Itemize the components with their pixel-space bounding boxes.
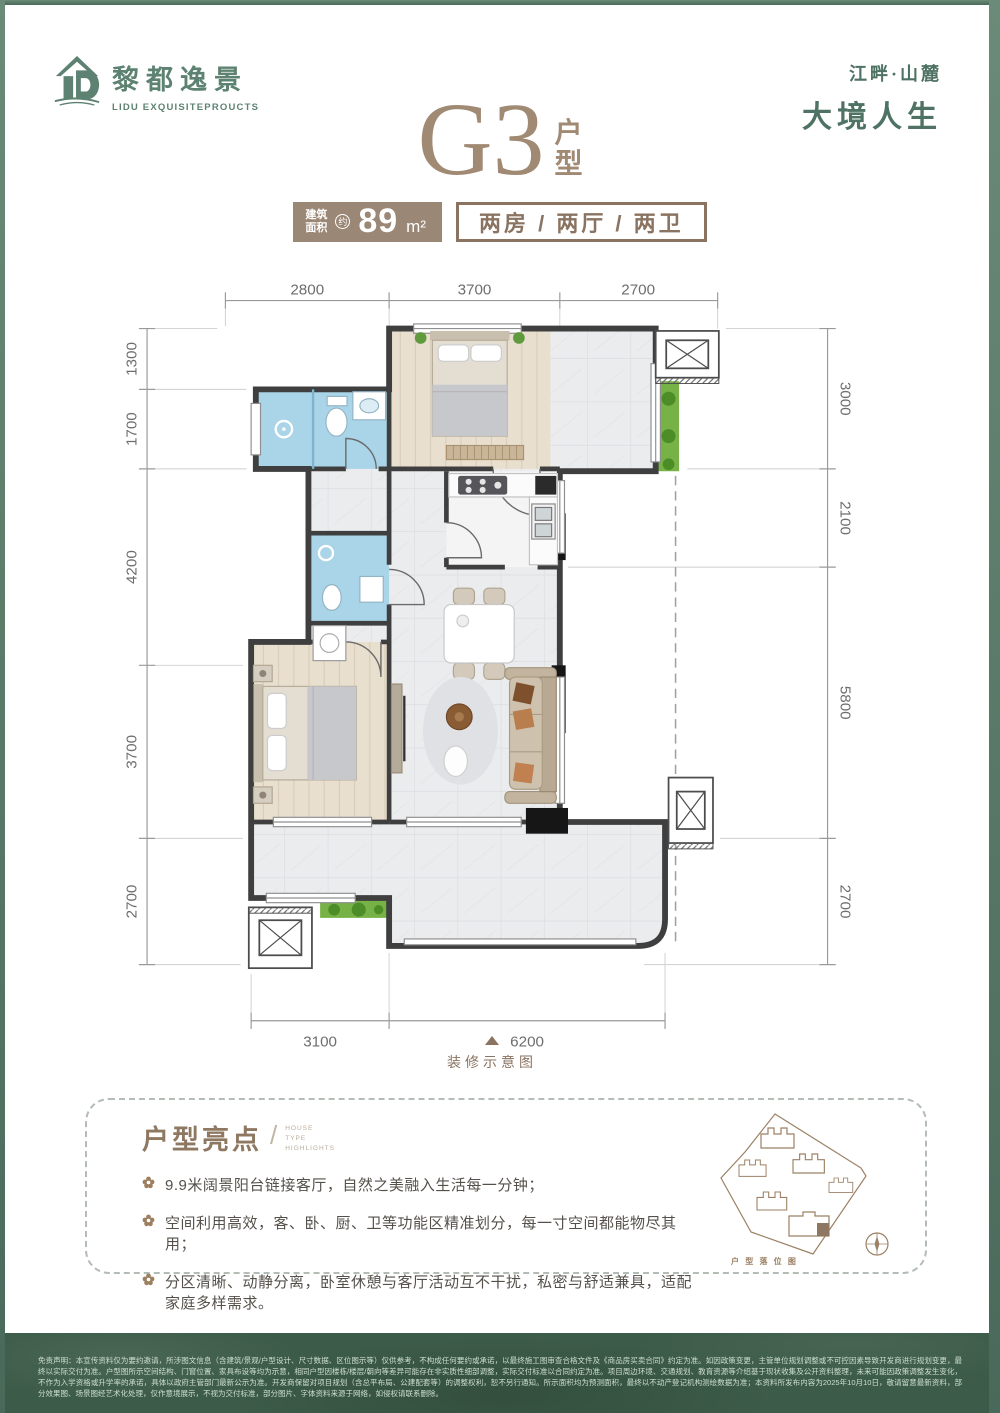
disclaimer-text: 免责声明：本宣传资料仅为要约邀请，所涉图文信息（含建筑/景观/户型设计、尺寸数据… xyxy=(0,1333,1000,1399)
floor-plan: 2800 3700 2700 1300 1700 4200 3700 2700 xyxy=(112,272,872,1068)
sofa-pillow xyxy=(512,682,534,704)
dim-label: 2100 xyxy=(836,501,853,535)
plant-icon xyxy=(415,332,427,344)
poster-page: 黎都逸景 LIDU EXQUISITEPROUCTS 江畔·山麓 大境人生 G3… xyxy=(0,0,1000,1413)
area-unit: m² xyxy=(406,217,426,242)
area-label-1: 建筑 xyxy=(305,209,327,222)
area-label-2: 面积 xyxy=(305,222,327,235)
dim-label: 3700 xyxy=(458,282,492,299)
sofa-pillow xyxy=(513,708,535,730)
dim-label: 5800 xyxy=(836,686,853,720)
dim-label: 3700 xyxy=(124,735,141,769)
dim-label: 2700 xyxy=(124,885,141,919)
highlight-item: 分区清晰、动静分离，卧室休憩与客厅活动互不干扰，私密与舒适兼具，适配家庭多样需求… xyxy=(142,1271,702,1313)
slogan-line-1: 江畔·山麓 xyxy=(802,60,942,86)
flower-bullet-icon xyxy=(142,1176,155,1189)
page-border-top xyxy=(0,0,1000,5)
floor-plan-svg: 2800 3700 2700 1300 1700 4200 3700 2700 xyxy=(112,272,872,1068)
plant-icon xyxy=(513,332,525,344)
bedroom2-bench xyxy=(446,446,523,460)
toilet-icon xyxy=(322,585,341,611)
ac-unit-top-right xyxy=(656,331,719,384)
flower-bullet-icon xyxy=(142,1214,155,1227)
fridge-icon xyxy=(535,476,556,495)
approx-circle-badge: 约 xyxy=(335,214,350,229)
compass-icon xyxy=(866,1233,888,1255)
highlights-title: 户型亮点 xyxy=(142,1118,262,1157)
sink-icon xyxy=(360,399,379,413)
highlight-item: 空间利用高效，客、卧、厨、卫等功能区精准划分，每一寸空间都能物尽其用； xyxy=(142,1212,702,1254)
dim-label: 4200 xyxy=(124,550,141,584)
dimensions-top: 2800 3700 2700 xyxy=(225,282,717,329)
dim-label: 1300 xyxy=(124,342,141,376)
flower-bullet-icon xyxy=(142,1273,155,1286)
ac-unit-bottom-left xyxy=(249,907,312,968)
highlights-box: 户型亮点 / HOUSE TYPE HIGHLIGHTS 9.9米阔景阳台链接客… xyxy=(85,1098,927,1274)
highlight-text: 9.9米阔景阳台链接客厅，自然之美融入生活每一分钟； xyxy=(165,1174,544,1195)
unit-code: G3 xyxy=(417,92,544,188)
page-border-left xyxy=(0,0,5,1413)
highlights-subtitle-2: TYPE xyxy=(285,1134,335,1144)
plan-caption: 装修示意图 xyxy=(112,1032,872,1072)
dim-label: 2700 xyxy=(621,282,655,299)
unit-spec-badges: 建筑 面积 约 89 m² 两房 / 两厅 / 两卫 xyxy=(293,202,706,242)
bottom-band: 免责声明：本宣传资料仅为要约邀请，所涉图文信息（含建筑/景观/户型设计、尺寸数据… xyxy=(0,1333,1000,1413)
highlights-subtitle-3: HIGHLIGHTS xyxy=(285,1144,335,1154)
pouf xyxy=(444,746,467,776)
sink-icon xyxy=(360,576,383,602)
dim-label: 2800 xyxy=(290,282,324,299)
washer-icon xyxy=(313,626,346,661)
dim-label: 2700 xyxy=(836,885,853,919)
unit-title-block: G3 户 型 建筑 面积 约 89 m² 两房 / 两厅 / 两卫 xyxy=(0,92,1000,242)
page-border-right xyxy=(989,0,1000,1413)
site-plan-label: 户 型 落 位 图 xyxy=(731,1256,798,1266)
highlight-text: 分区清晰、动静分离，卧室休憩与客厅活动互不干扰，私密与舒适兼具，适配家庭多样需求… xyxy=(165,1271,702,1313)
ac-unit-right xyxy=(669,778,713,849)
sofa-pillow xyxy=(513,762,534,783)
dim-label: 3000 xyxy=(836,382,853,416)
highlight-text: 空间利用高效，客、卧、厨、卫等功能区精准划分，每一寸空间都能物尽其用； xyxy=(165,1212,702,1254)
site-plan: 户 型 落 位 图 xyxy=(709,1104,909,1272)
dim-label: 1700 xyxy=(124,412,141,446)
unit-suffix-char-2: 型 xyxy=(555,149,583,180)
dining-table xyxy=(444,605,514,663)
toilet-icon xyxy=(326,408,347,436)
site-building-highlighted xyxy=(789,1212,829,1236)
dimensions-left: 1300 1700 4200 3700 2700 xyxy=(124,329,247,965)
triangle-up-icon xyxy=(485,1036,499,1045)
unit-suffix-char-1: 户 xyxy=(555,118,583,149)
highlight-item: 9.9米阔景阳台链接客厅，自然之美融入生活每一分钟； xyxy=(142,1174,702,1195)
plan-caption-text: 装修示意图 xyxy=(112,1052,872,1072)
highlights-subtitle-1: HOUSE xyxy=(285,1124,335,1134)
tv-console xyxy=(391,684,402,773)
area-badge: 建筑 面积 约 89 m² xyxy=(293,202,442,242)
site-building xyxy=(739,1128,853,1210)
layout-badge: 两房 / 两厅 / 两卫 xyxy=(456,202,707,242)
slash-divider: / xyxy=(270,1120,277,1151)
area-value: 89 xyxy=(358,202,398,241)
